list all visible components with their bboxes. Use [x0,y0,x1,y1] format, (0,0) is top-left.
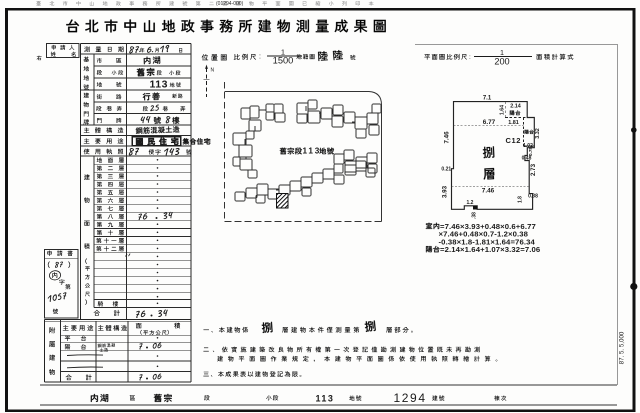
svg-text:7.46: 7.46 [482,188,495,195]
svg-text:N: N [211,68,215,74]
svg-text:1.64: 1.64 [499,105,505,115]
svg-text:1.2: 1.2 [467,200,474,206]
svg-text:2.14: 2.14 [510,104,521,110]
svg-text:(01294-000): (01294-000) [216,1,244,7]
svg-text:7.46: 7.46 [444,131,451,144]
svg-text:0.48: 0.48 [522,155,532,161]
svg-text:1.8: 1.8 [517,196,523,203]
svg-text:=2.14×1.64+1.07×3.32=7.06: =2.14×1.64+1.07×3.32=7.06 [440,245,540,254]
svg-text:.38: .38 [471,212,477,219]
svg-text:1294: 1294 [394,391,427,405]
svg-text::: : [259,54,261,61]
svg-text:2.73: 2.73 [530,163,537,176]
svg-text:0.38: 0.38 [528,193,538,199]
svg-text:1500: 1500 [273,56,294,66]
svg-text:3.93: 3.93 [441,185,448,198]
svg-text:87. 5. 5,000: 87. 5. 5,000 [619,331,626,364]
svg-text:3.32: 3.32 [535,128,541,139]
svg-text:6.77: 6.77 [483,119,496,126]
svg-text:113: 113 [303,147,322,156]
svg-text:C12: C12 [506,136,522,145]
svg-text:7.1: 7.1 [483,96,492,102]
svg-text:113: 113 [150,79,168,91]
svg-text:0.21: 0.21 [441,166,451,172]
svg-text::: : [469,54,471,61]
svg-text:113: 113 [316,394,335,404]
svg-text:1.81: 1.81 [508,120,519,126]
svg-text:200: 200 [494,57,509,67]
